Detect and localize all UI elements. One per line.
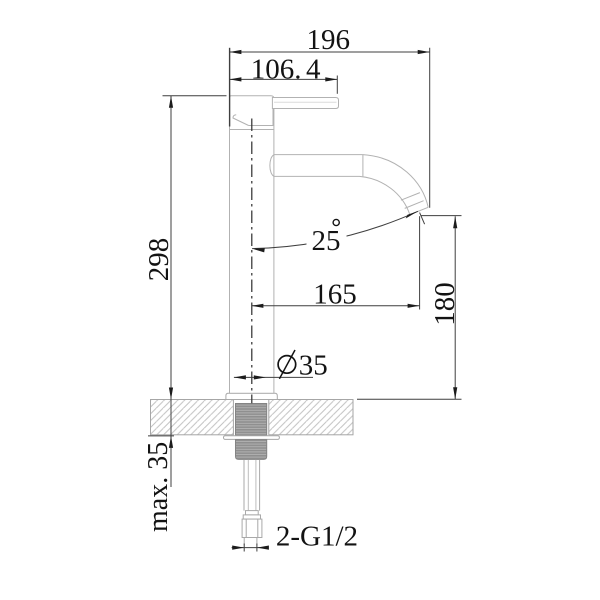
svg-text:165: 165 [313, 279, 357, 311]
svg-text:35: 35 [299, 349, 328, 381]
svg-text:180: 180 [429, 282, 461, 326]
svg-text:25: 25 [312, 225, 341, 257]
svg-text:298: 298 [143, 238, 175, 282]
svg-text:4: 4 [306, 53, 321, 85]
svg-text:max. 35: max. 35 [143, 442, 174, 532]
svg-text:196: 196 [307, 24, 351, 56]
svg-text:106.: 106. [251, 53, 302, 85]
svg-text:2-G1/2: 2-G1/2 [276, 520, 358, 552]
